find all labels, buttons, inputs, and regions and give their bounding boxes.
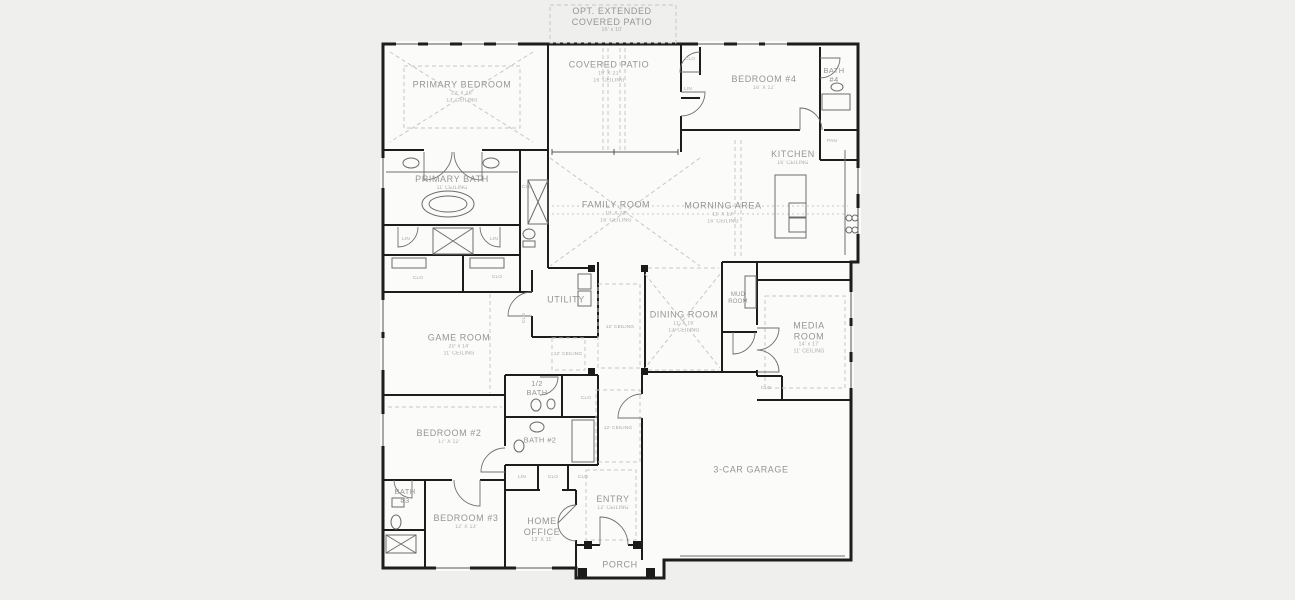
room-ceiling: 16' CEILING <box>586 218 646 224</box>
room-name: BEDROOM #2 <box>416 428 481 438</box>
room-name: BEDROOM #3 <box>433 513 498 523</box>
closet-label: CLO <box>685 57 695 62</box>
room-name: ENTRY <box>596 494 629 504</box>
room-label-primary-bedroom: PRIMARY BEDROOM 22' X 16' 13' CEILING <box>413 80 512 105</box>
room-dims: 22' X 16' <box>419 91 506 97</box>
floor-plan-drawing <box>0 0 1295 600</box>
linen-label: LIN <box>518 475 526 480</box>
room-name: FAMILY ROOM <box>582 200 650 210</box>
room-dims: 14' x 17' <box>788 342 830 348</box>
room-name: PRIMARY BEDROOM <box>413 80 512 90</box>
room-label-bath-4: BATH #4 <box>821 67 847 85</box>
closet-label: CLO <box>548 475 558 480</box>
room-name: BATH #3 <box>394 487 415 505</box>
room-ceiling: 16' CEILING <box>689 219 757 225</box>
room-name: BATH #2 <box>524 436 557 445</box>
room-dims: 16' x 10' <box>560 27 664 33</box>
room-name: BEDROOM #4 <box>731 74 796 84</box>
room-dims: 16' X 12' <box>735 85 792 91</box>
room-ceiling: 12' CEILING <box>597 505 628 511</box>
closet-label: CLO <box>761 386 771 391</box>
room-label-bedroom-3: BEDROOM #3 12' X 13' <box>433 513 498 531</box>
closet-label: CLO <box>581 396 591 401</box>
room-ceiling: 11' CEILING <box>432 351 487 357</box>
room-label-dining-room: DINING ROOM 11' X 16' 13' CEILING <box>650 310 719 335</box>
room-name: PRIMARY BATH <box>415 174 489 184</box>
room-dims: 11' X 16' <box>654 321 714 327</box>
room-label-home-office: HOME OFFICE 13' X 11' <box>516 516 568 544</box>
linen-label: LIN <box>684 87 692 92</box>
closet-label: CLO <box>522 313 527 323</box>
room-dims: 12' X 13' <box>437 524 494 530</box>
room-label-media-room: MEDIA ROOM 14' x 17' 11' CEILING <box>785 320 833 355</box>
room-name: 1/2 BATH <box>526 379 547 397</box>
room-label-morning-area: MORNING AREA 11' X 13' 16' CEILING <box>684 201 761 226</box>
room-label-bedroom-2: BEDROOM #2 17' X 12' <box>416 428 481 446</box>
room-label-covered-patio: COVERED PATIO 16' X 21' 16' CEILING <box>569 60 649 85</box>
room-name: KITCHEN <box>771 149 815 159</box>
room-name: GAME ROOM <box>428 333 490 343</box>
room-label-3-car-garage: 3-CAR GARAGE <box>713 465 788 476</box>
room-label-half-bath: 1/2 BATH <box>524 380 550 398</box>
linen-label: LIN <box>402 237 410 242</box>
room-name: MORNING AREA <box>684 201 761 211</box>
room-dims: 13' X 11' <box>519 537 565 543</box>
room-label-porch: PORCH <box>602 560 638 571</box>
linen-label: LIN <box>490 237 498 242</box>
room-label-bath-2: BATH #2 <box>524 437 557 446</box>
closet-label: CLO <box>578 475 588 480</box>
room-name: HOME OFFICE <box>524 516 561 537</box>
room-name: DINING ROOM <box>650 310 719 320</box>
closet-label: CLO <box>413 276 423 281</box>
room-name: UTILITY <box>547 295 585 305</box>
room-label-entry: ENTRY 12' CEILING <box>595 494 631 512</box>
ceiling-note: 12' CEILING <box>604 426 633 431</box>
ceiling-note: 12' CEILING <box>554 352 583 357</box>
room-dims: 20' x 14' <box>432 344 487 350</box>
room-label-bedroom-4: BEDROOM #4 16' X 12' <box>731 74 796 92</box>
floor-plan-canvas: OPT. EXTENDED COVERED PATIO 16' x 10' CO… <box>0 0 1295 600</box>
room-label-bath-3: BATH #3 <box>390 488 420 506</box>
room-label-family-room: FAMILY ROOM 19' X 21' 16' CEILING <box>582 200 650 225</box>
closet-label: CLO <box>492 275 502 280</box>
room-name: BATH #4 <box>823 66 844 84</box>
room-dims: 19' X 21' <box>586 211 646 217</box>
room-label-mud-room: MUD ROOM <box>725 292 751 306</box>
closet-label: CLO <box>522 185 532 190</box>
room-ceiling: 13' CEILING <box>654 328 714 334</box>
room-label-opt-extended-covered-patio: OPT. EXTENDED COVERED PATIO 16' x 10' <box>553 6 671 34</box>
room-name: MEDIA ROOM <box>793 320 825 341</box>
room-name: 3-CAR GARAGE <box>713 465 788 475</box>
room-label-game-room: GAME ROOM 20' x 14' 11' CEILING <box>428 333 490 358</box>
room-ceiling: 16' CEILING <box>574 78 645 84</box>
ceiling-note: 12' CEILING <box>606 325 635 330</box>
room-ceiling: 13' CEILING <box>419 98 506 104</box>
room-name: MUD ROOM <box>728 292 747 305</box>
room-dims: 11' X 13' <box>689 212 757 218</box>
room-dims: 17' X 12' <box>420 439 477 445</box>
room-name: PORCH <box>602 560 638 570</box>
room-label-kitchen: KITCHEN 16' CEILING <box>771 149 815 167</box>
room-name: COVERED PATIO <box>569 60 649 70</box>
room-ceiling: 11' CEILING <box>420 185 485 191</box>
room-dims: 16' X 21' <box>574 71 645 77</box>
room-ceiling: 11' CEILING <box>788 349 830 355</box>
pantry-label: PAN <box>827 139 837 144</box>
room-label-utility: UTILITY <box>547 295 585 306</box>
room-ceiling: 16' CEILING <box>774 160 812 166</box>
room-name: OPT. EXTENDED COVERED PATIO <box>572 6 652 27</box>
room-label-primary-bath: PRIMARY BATH 11' CEILING <box>415 174 489 192</box>
